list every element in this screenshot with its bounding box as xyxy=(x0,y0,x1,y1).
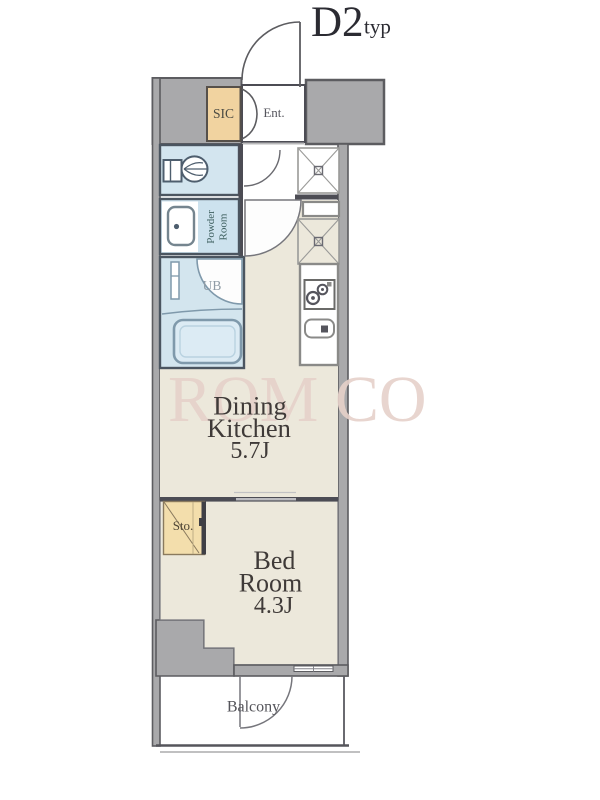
svg-text:Balcony: Balcony xyxy=(227,699,280,716)
svg-text:UB: UB xyxy=(203,278,222,293)
svg-text:4.3J: 4.3J xyxy=(254,593,293,619)
svg-text:Powder: Powder xyxy=(205,210,217,244)
svg-text:typ: typ xyxy=(364,15,391,39)
svg-text:Room: Room xyxy=(218,213,230,240)
svg-text:SIC: SIC xyxy=(213,106,234,121)
svg-text:5.7J: 5.7J xyxy=(230,438,269,464)
svg-text:Sto.: Sto. xyxy=(173,518,194,533)
svg-text:Ent.: Ent. xyxy=(263,105,284,120)
svg-text:D2: D2 xyxy=(311,0,364,46)
